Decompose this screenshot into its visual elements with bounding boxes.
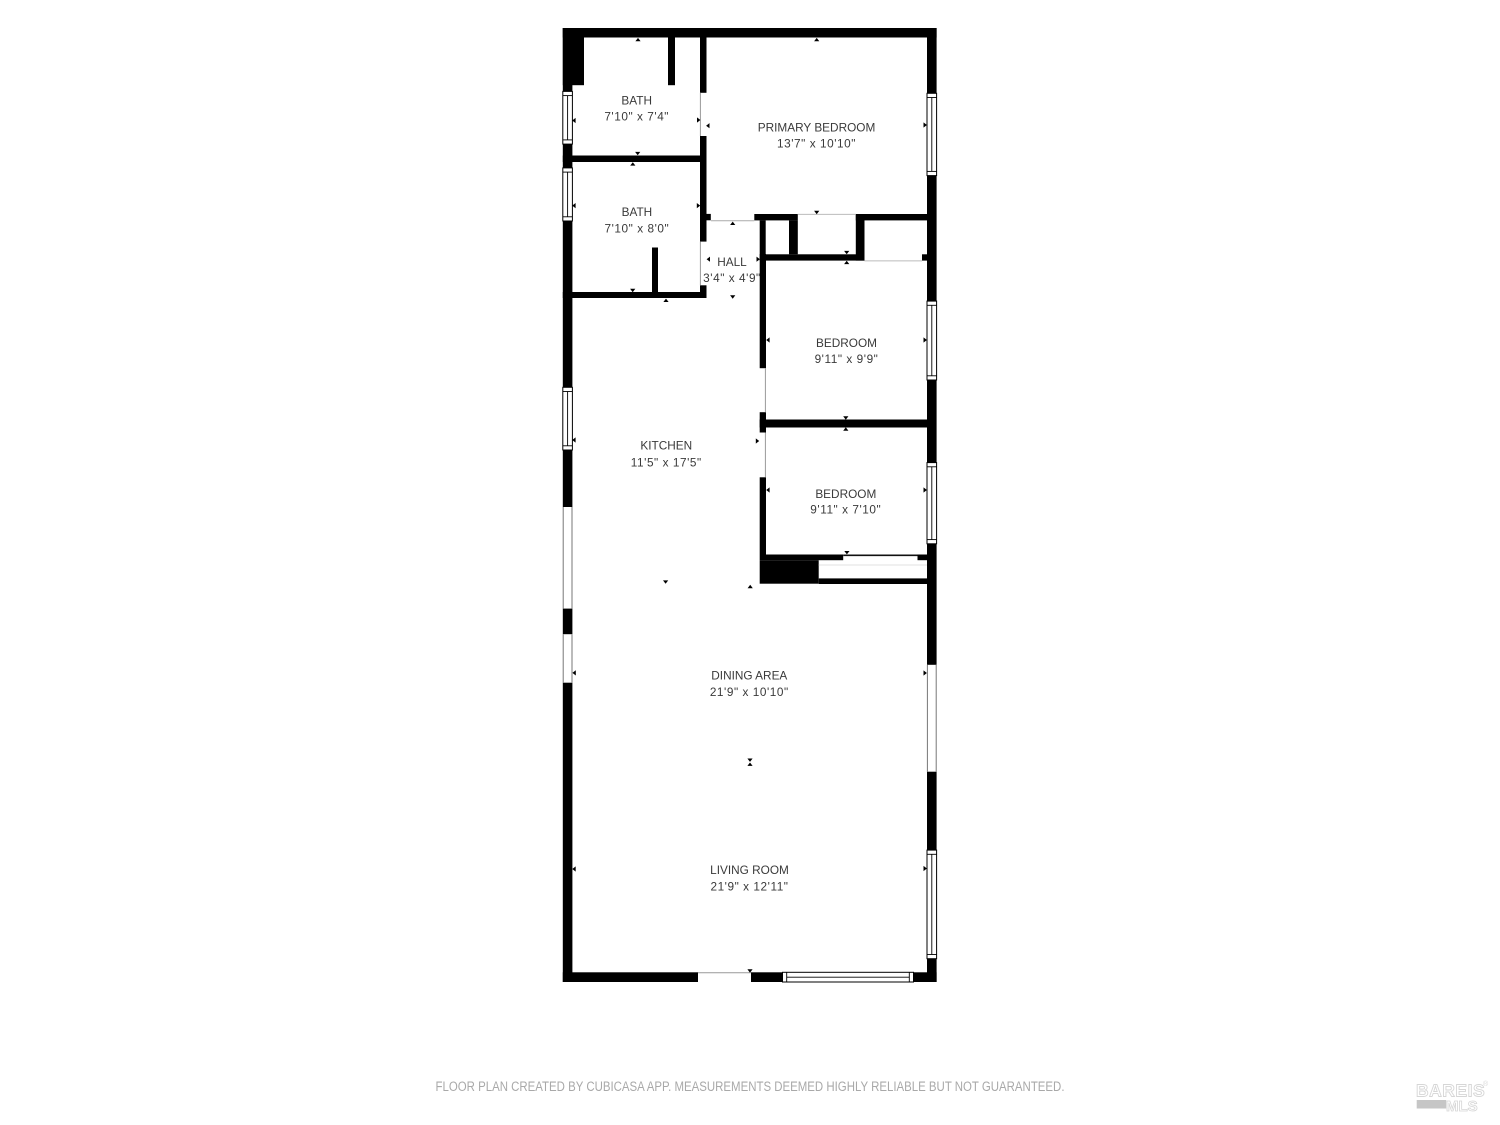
svg-text:9'11" x 7'10": 9'11" x 7'10": [810, 503, 881, 517]
svg-text:BATH: BATH: [622, 205, 653, 219]
svg-text:21'9" x 12'11": 21'9" x 12'11": [710, 880, 788, 894]
svg-text:PRIMARY BEDROOM: PRIMARY BEDROOM: [758, 120, 876, 134]
svg-text:MLS: MLS: [1446, 1098, 1478, 1115]
svg-text:DINING AREA: DINING AREA: [711, 668, 787, 682]
svg-text:KITCHEN: KITCHEN: [640, 439, 692, 453]
svg-text:BEDROOM: BEDROOM: [816, 336, 877, 350]
svg-text:3'4" x 4'9": 3'4" x 4'9": [703, 271, 761, 285]
svg-text:9'11" x 9'9": 9'11" x 9'9": [815, 352, 879, 366]
svg-text:13'7" x 10'10": 13'7" x 10'10": [777, 137, 856, 151]
svg-text:21'9" x 10'10": 21'9" x 10'10": [710, 685, 789, 699]
svg-text:HALL: HALL: [717, 255, 747, 269]
svg-text:BATH: BATH: [621, 94, 652, 108]
svg-text:7'10" x 7'4": 7'10" x 7'4": [604, 110, 669, 124]
svg-text:FLOOR PLAN CREATED BY CUBICASA: FLOOR PLAN CREATED BY CUBICASA APP. MEAS…: [436, 1079, 1065, 1094]
svg-text:BEDROOM: BEDROOM: [815, 487, 876, 501]
svg-text:®: ®: [1483, 1080, 1489, 1088]
svg-text:LIVING ROOM: LIVING ROOM: [710, 863, 789, 877]
svg-text:7'10" x 8'0": 7'10" x 8'0": [605, 221, 670, 235]
svg-text:11'5" x 17'5": 11'5" x 17'5": [631, 455, 702, 469]
